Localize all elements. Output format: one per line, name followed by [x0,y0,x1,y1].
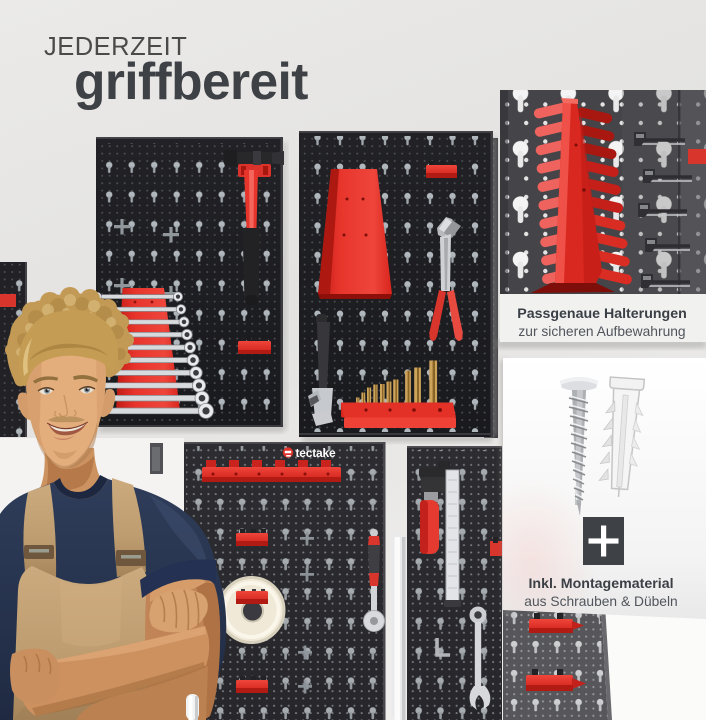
svg-text:Passgenaue Halterungen: Passgenaue Halterungen [517,306,687,322]
svg-text:Inkl. Montagematerial: Inkl. Montagematerial [528,576,673,592]
svg-text:zur sicheren Aufbewahrung: zur sicheren Aufbewahrung [518,324,685,339]
svg-text:aus Schrauben & Dübeln: aus Schrauben & Dübeln [524,594,677,609]
svg-text:griffbereit: griffbereit [74,52,308,110]
svg-text:tectake: tectake [296,446,336,460]
